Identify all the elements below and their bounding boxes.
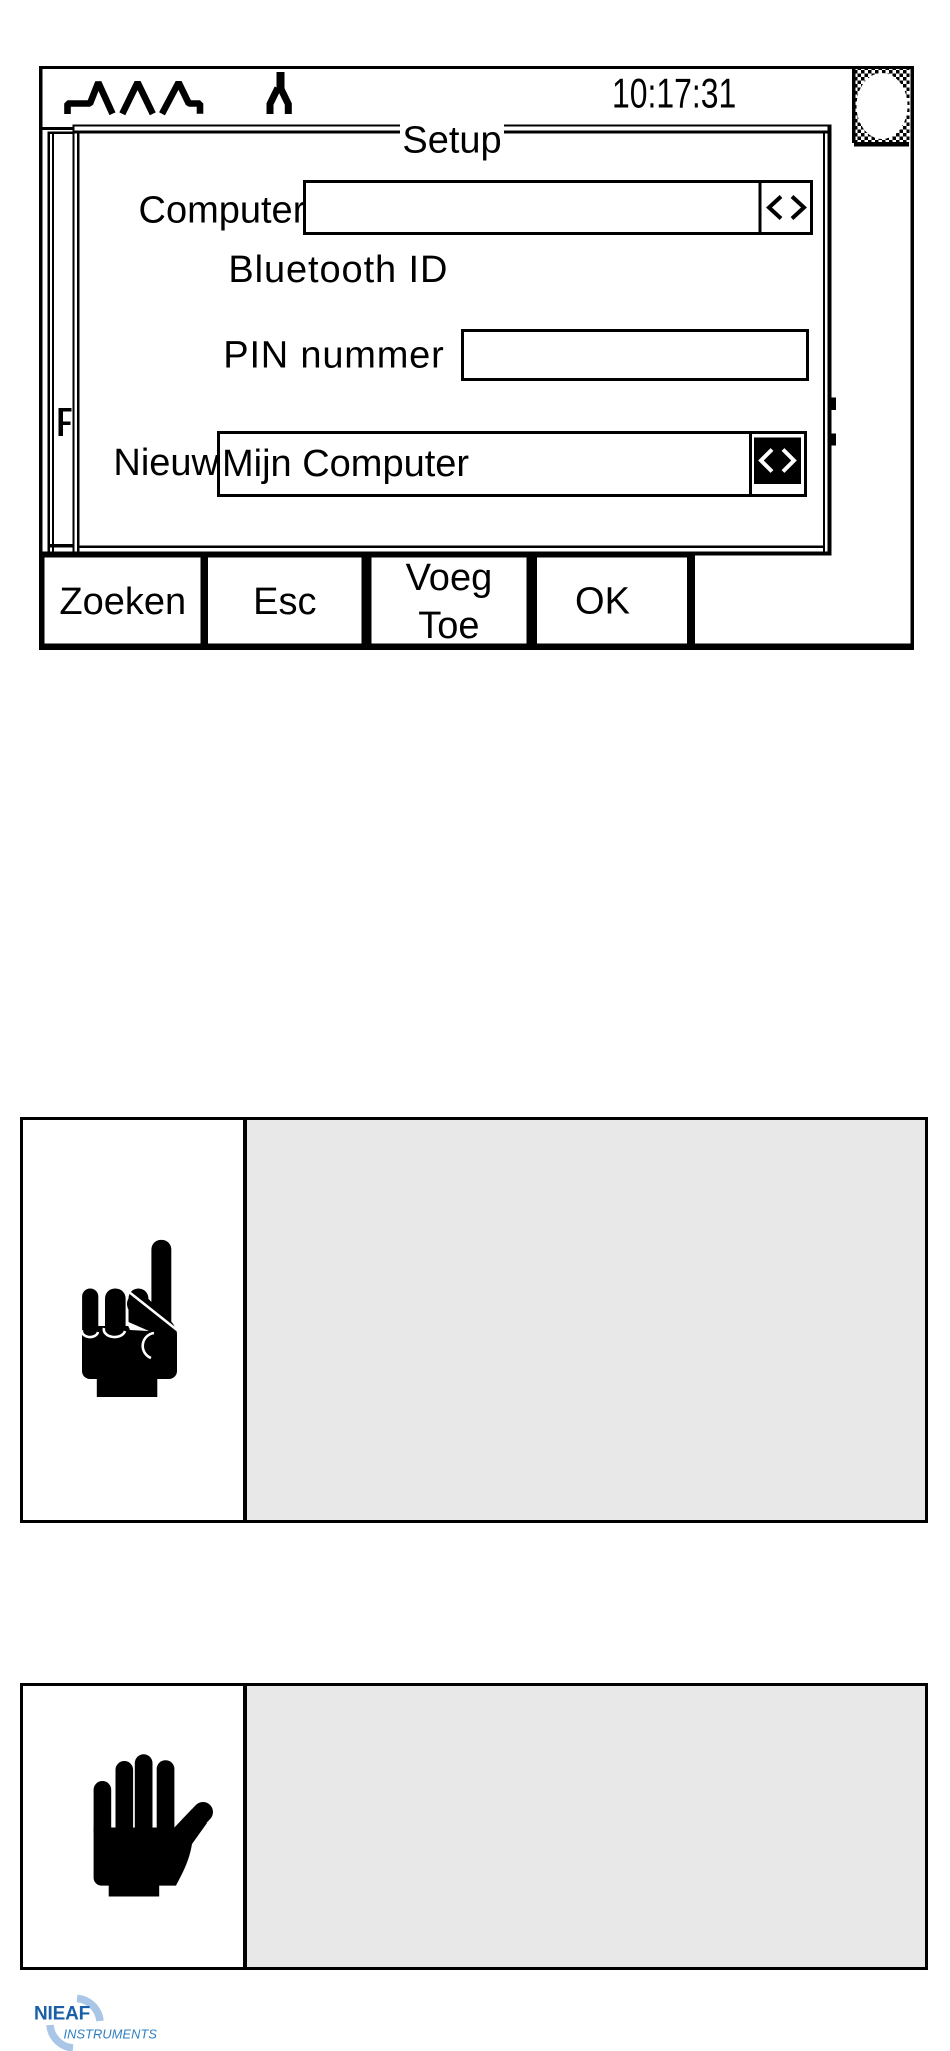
svg-text:Esc: Esc xyxy=(253,581,316,623)
svg-text:Toe: Toe xyxy=(418,605,479,647)
svg-text:NIEAF: NIEAF xyxy=(34,2004,90,2025)
svg-text:Bluetooth ID: Bluetooth ID xyxy=(228,249,448,291)
svg-text:Nieuw: Nieuw xyxy=(113,442,219,484)
svg-text:Voeg: Voeg xyxy=(406,557,493,599)
svg-text:Computer: Computer xyxy=(139,189,306,231)
svg-text:OK: OK xyxy=(575,581,630,623)
svg-text:PIN nummer: PIN nummer xyxy=(223,334,444,376)
svg-text:Mijn Computer: Mijn Computer xyxy=(222,443,469,485)
svg-text:Zoeken: Zoeken xyxy=(59,581,186,623)
svg-text:Setup: Setup xyxy=(402,119,501,161)
svg-text:10:17:31: 10:17:31 xyxy=(612,69,736,116)
svg-text:INSTRUMENTS: INSTRUMENTS xyxy=(64,2027,158,2042)
